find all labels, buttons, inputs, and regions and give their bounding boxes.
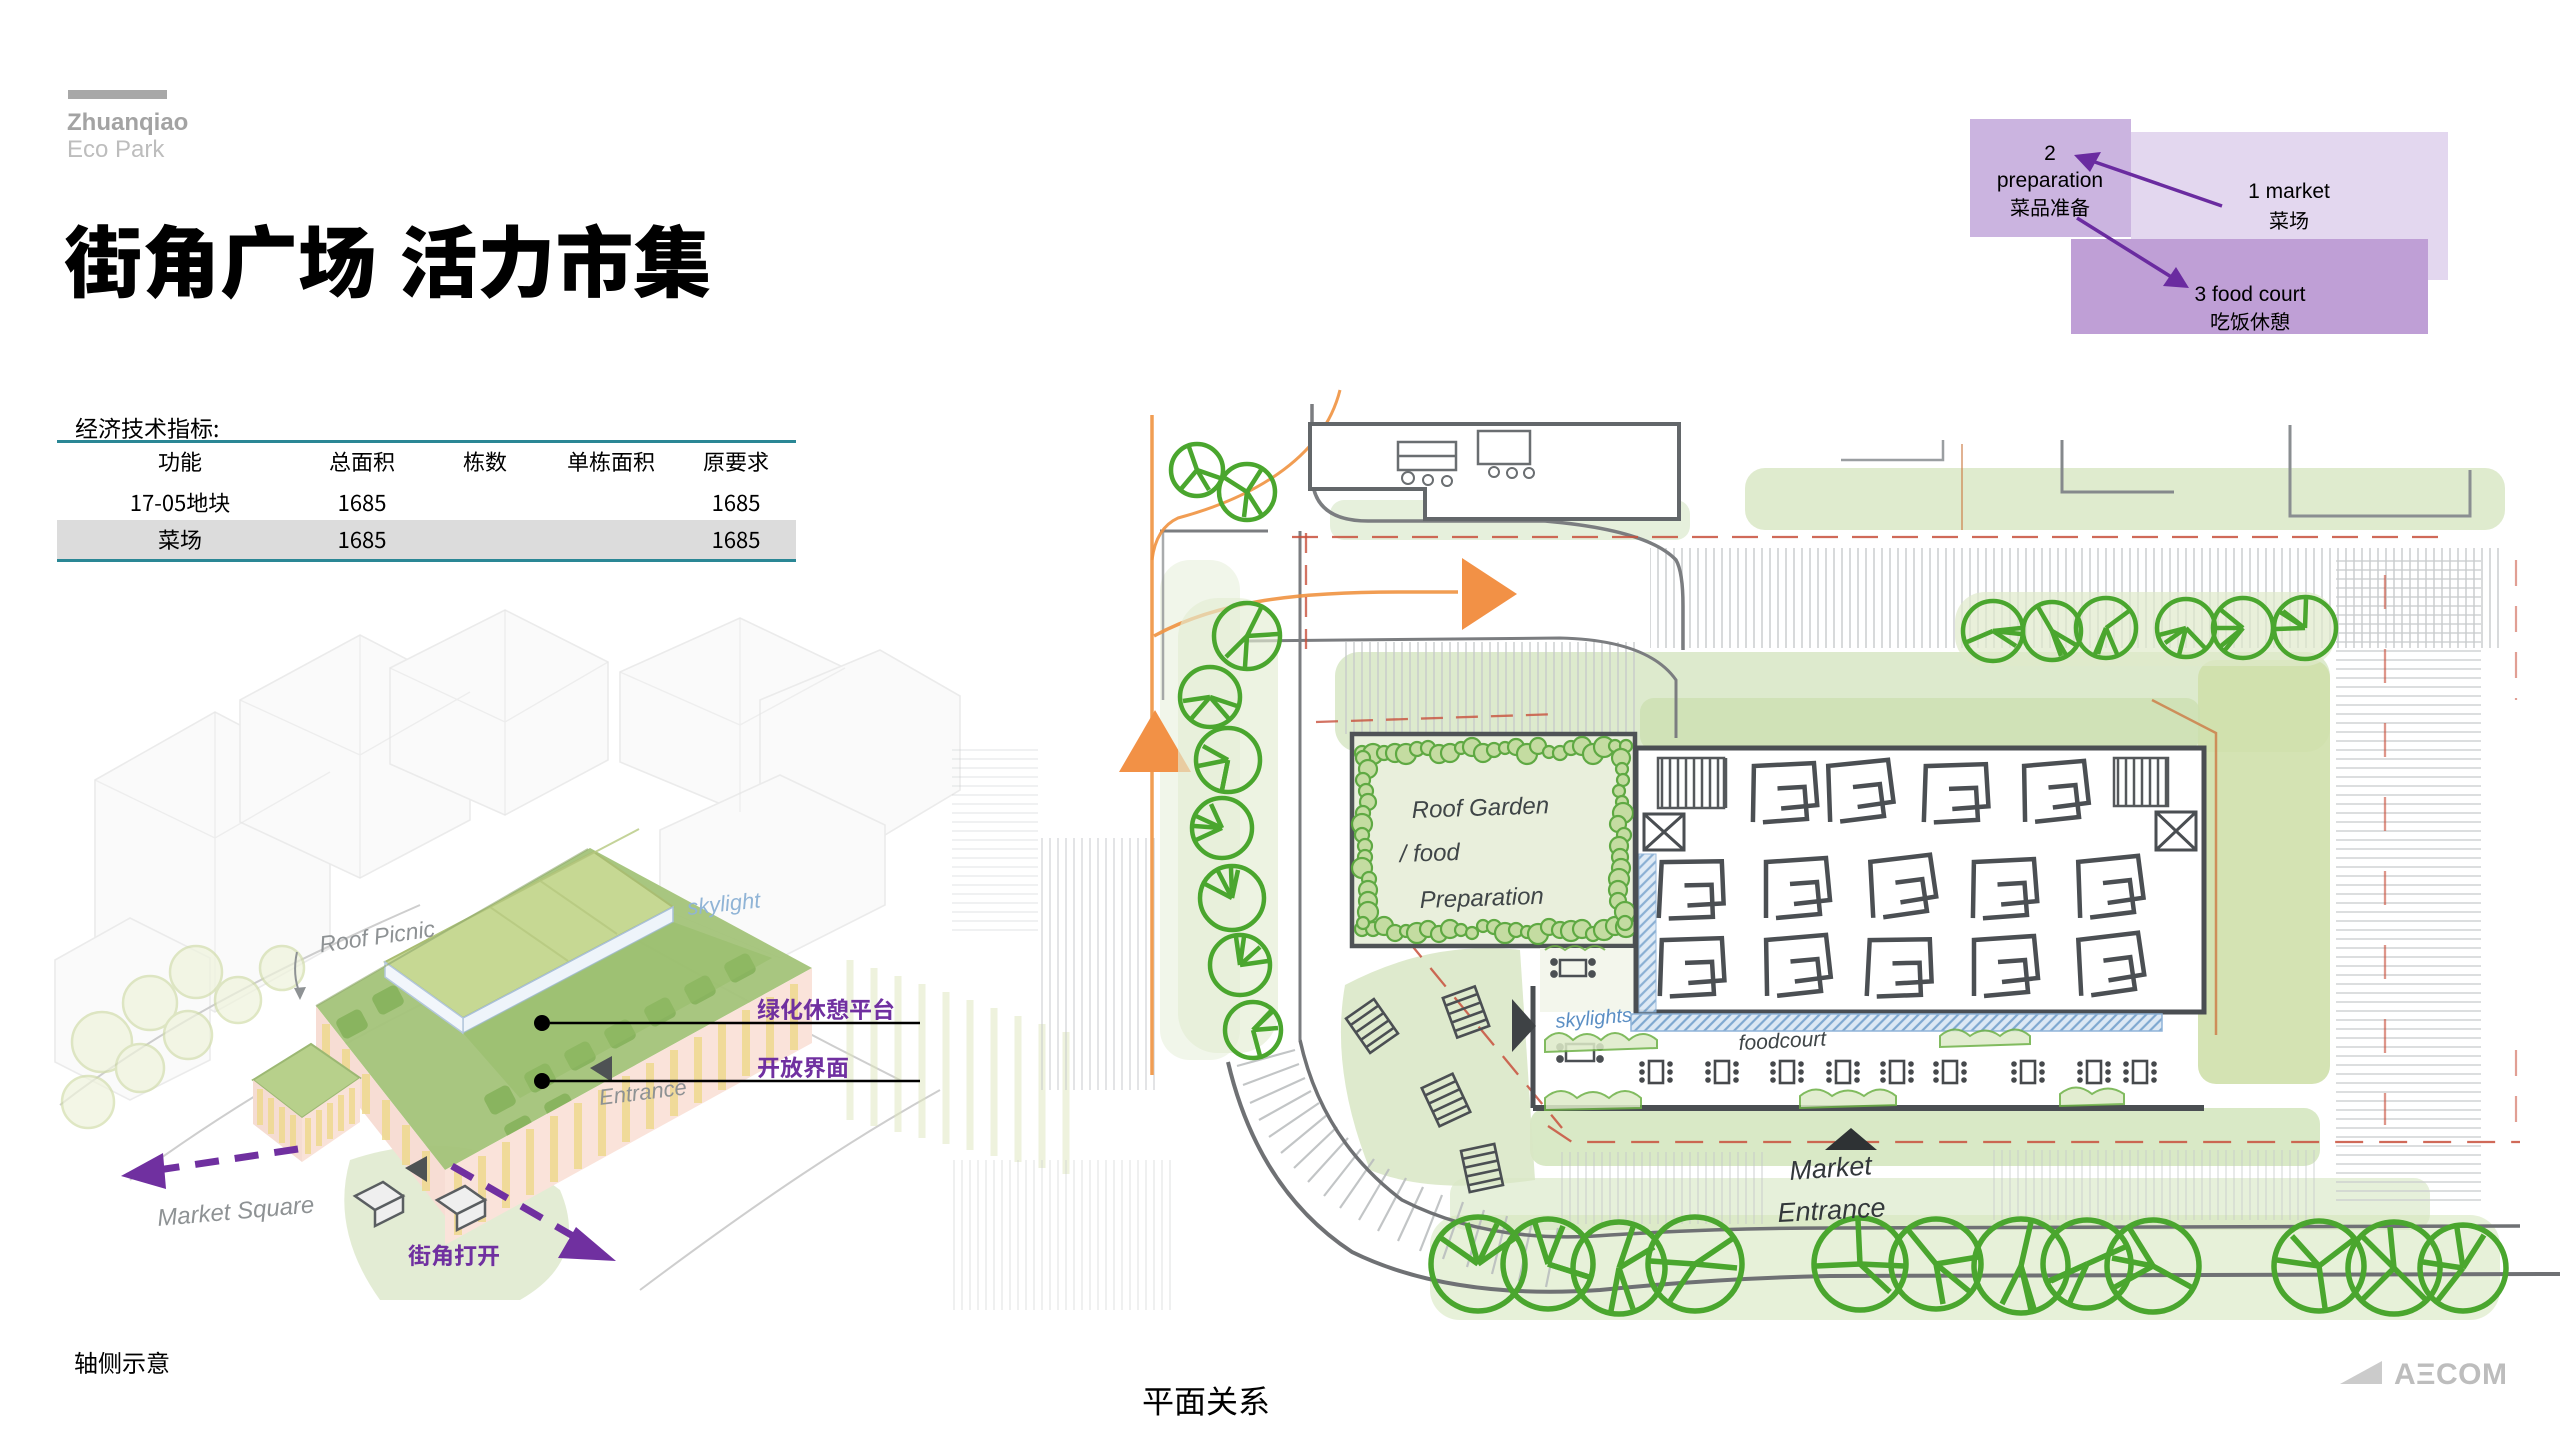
svg-text:Entrance: Entrance [1777,1192,1887,1228]
svg-text:Zhuanqiao: Zhuanqiao [67,109,188,136]
svg-text:Market: Market [1788,1150,1874,1186]
svg-text:foodcourt: foodcourt [1738,1027,1828,1055]
svg-text:AΞCOM: AΞCOM [2394,1358,2507,1391]
svg-text:2: 2 [2044,142,2056,165]
svg-text:1 market: 1 market [2248,180,2330,203]
svg-text:3 food court: 3 food court [2195,283,2306,306]
svg-text:Preparation: Preparation [1419,883,1544,914]
svg-text:preparation: preparation [1997,169,2103,192]
svg-text:Eco Park: Eco Park [67,136,165,163]
svg-text:Roof Garden: Roof Garden [1411,792,1549,824]
svg-text:/ food: / food [1397,839,1461,868]
